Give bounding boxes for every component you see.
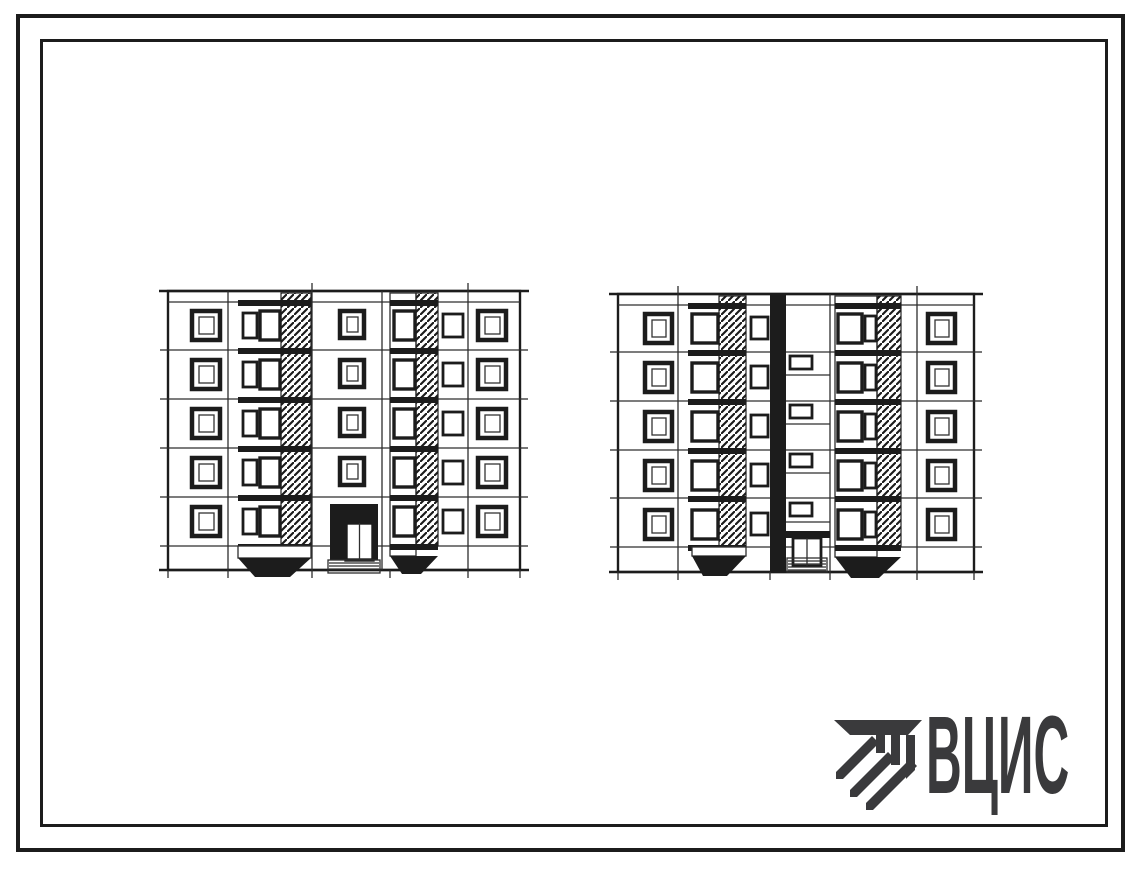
loggia-foot-panel [238, 546, 311, 558]
loggia-door-window [260, 409, 280, 438]
window [192, 458, 220, 487]
loggia-door-window [692, 412, 718, 441]
window [340, 458, 364, 485]
window-small [751, 464, 768, 486]
building-elevation-left [159, 283, 529, 578]
window [340, 311, 364, 338]
balcony-slab [238, 348, 311, 354]
balcony-slab [238, 397, 311, 403]
window [192, 507, 220, 536]
window-small [751, 317, 768, 339]
loggia-window [394, 409, 415, 438]
window [645, 314, 672, 343]
vcis-emblem-icon [830, 710, 926, 810]
stairwell-shadow-strip [770, 294, 786, 572]
loggia-window [865, 512, 876, 537]
window [478, 360, 506, 389]
loggia-window [865, 463, 876, 488]
balcony-slab [688, 496, 746, 502]
loggia-foot-panel [692, 547, 746, 556]
stair-landing-window [790, 454, 812, 467]
balcony-slab [688, 399, 746, 405]
balcony-slab [835, 496, 901, 502]
window [478, 507, 506, 536]
window [645, 412, 672, 441]
loggia-window [243, 509, 257, 534]
window-small [443, 510, 463, 533]
balcony-slab [835, 303, 901, 309]
balcony-slab [688, 350, 746, 356]
loggia-shadow-hatch [877, 296, 901, 547]
window-small [751, 366, 768, 388]
loggia-window [865, 414, 876, 439]
window [645, 510, 672, 539]
loggia-door-window [838, 363, 862, 392]
window-small [443, 412, 463, 435]
loggia-window [394, 311, 415, 340]
loggia-door-window [838, 461, 862, 490]
loggia-window [243, 362, 257, 387]
window [928, 363, 955, 392]
balcony-slab [390, 300, 438, 306]
window-small [443, 461, 463, 484]
loggia-door-window [260, 360, 280, 389]
loggia-shadow-hatch [719, 296, 746, 547]
window-small [443, 363, 463, 386]
loggia-door-window [838, 412, 862, 441]
window [478, 311, 506, 340]
loggia-door-window [838, 314, 862, 343]
balcony-slab [390, 544, 438, 550]
loggia-shadow-hatch [281, 293, 311, 546]
balcony-slab [835, 545, 901, 551]
window [340, 360, 364, 387]
window [478, 458, 506, 487]
loggia-door-window [260, 311, 280, 340]
stair-landing-window [790, 405, 812, 418]
window [928, 412, 955, 441]
window-small [443, 314, 463, 337]
balcony-slab [390, 348, 438, 354]
balcony-slab [688, 303, 746, 309]
balcony-slab [688, 448, 746, 454]
loggia-window [243, 460, 257, 485]
window [928, 461, 955, 490]
window [928, 314, 955, 343]
loggia-window [394, 507, 415, 536]
window [645, 461, 672, 490]
window [340, 409, 364, 436]
loggia-foot [238, 558, 311, 577]
window-small [751, 513, 768, 535]
vcis-logo-text: ВЦИС [926, 704, 1069, 809]
balcony-slab [835, 448, 901, 454]
balcony-slab [238, 495, 311, 501]
loggia-window [865, 365, 876, 390]
window [192, 360, 220, 389]
loggia-window [394, 458, 415, 487]
balcony-slab [238, 446, 311, 452]
building-elevation-right [609, 286, 983, 580]
window [645, 363, 672, 392]
stair-landing-window [790, 356, 812, 369]
loggia-shadow-hatch [416, 293, 438, 546]
window [192, 311, 220, 340]
vcis-logo: ВЦИС [830, 710, 1090, 816]
balcony-slab [390, 446, 438, 452]
loggia-door-window [692, 510, 718, 539]
loggia-door-window [692, 363, 718, 392]
loggia-window [394, 360, 415, 389]
loggia-window [243, 411, 257, 436]
window [478, 409, 506, 438]
balcony-slab [835, 350, 901, 356]
loggia-door-window [692, 461, 718, 490]
balcony-slab [238, 300, 311, 306]
loggia-door-window [260, 458, 280, 487]
loggia-window [865, 316, 876, 341]
loggia-door-window [838, 510, 862, 539]
loggia-window [243, 313, 257, 338]
window [192, 409, 220, 438]
loggia-door-window [260, 507, 280, 536]
window-small [751, 415, 768, 437]
stair-landing-window [790, 503, 812, 516]
balcony-slab [390, 397, 438, 403]
loggia-door-window [692, 314, 718, 343]
balcony-slab [390, 495, 438, 501]
window [928, 510, 955, 539]
balcony-slab [835, 399, 901, 405]
